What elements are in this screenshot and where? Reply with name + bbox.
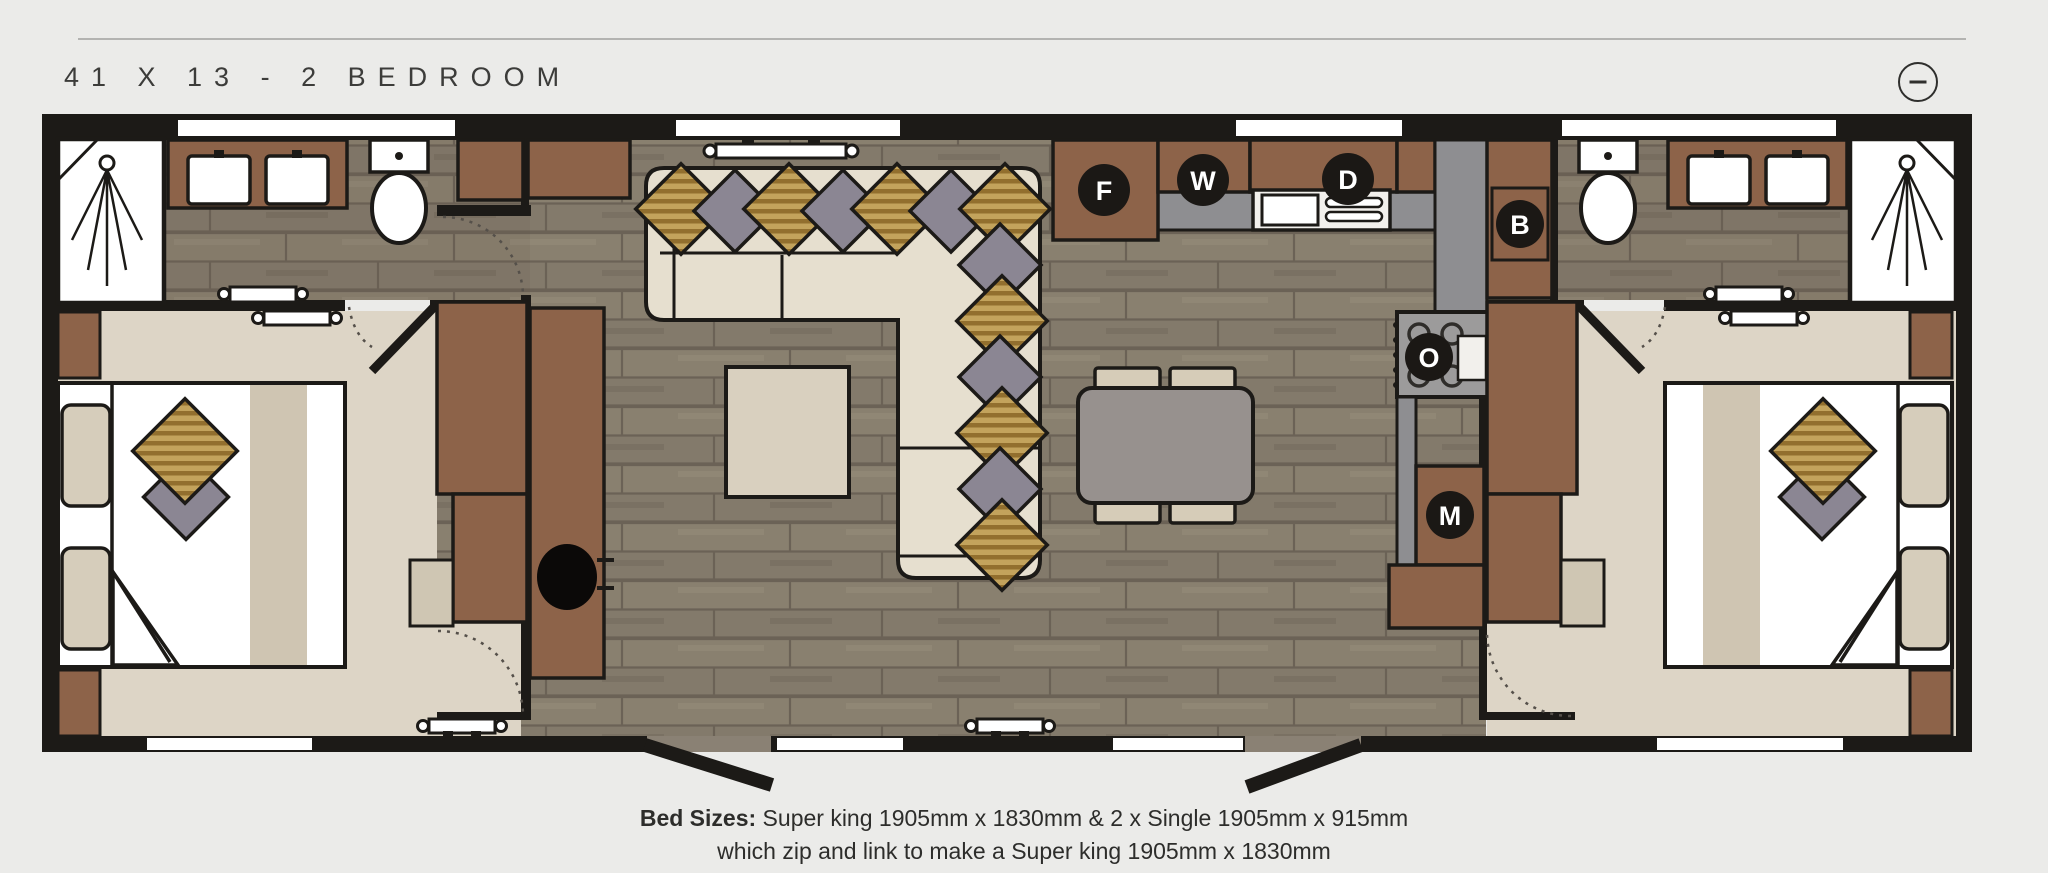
- badge-letter: O: [1418, 343, 1439, 373]
- tap-icon: [1714, 150, 1724, 158]
- window-top-lounge: [676, 120, 900, 136]
- media-fire-unit: [530, 308, 614, 678]
- badge-letter: B: [1510, 210, 1530, 240]
- caption-line-1: Bed Sizes: Super king 1905mm x 1830mm & …: [0, 802, 2048, 835]
- appliance-badge-boiler: B: [1496, 200, 1544, 248]
- shower-head-icon: [100, 156, 114, 170]
- appliance-badge-oven: O: [1405, 333, 1453, 381]
- counter-grey-strip: [1397, 397, 1416, 565]
- appliance-badge-washer: W: [1177, 154, 1229, 206]
- drainer-icon: [1326, 212, 1382, 221]
- nightstand: [62, 405, 110, 506]
- coffee-table: [726, 367, 849, 497]
- sink-basin: [1262, 195, 1318, 225]
- corner-unit: [1910, 670, 1952, 736]
- tv-cabinet: [458, 140, 523, 200]
- tap-icon: [292, 150, 302, 158]
- radiator: [1720, 311, 1809, 325]
- radiator: [253, 311, 342, 325]
- badge-letter: F: [1096, 176, 1113, 206]
- nightstand: [62, 548, 110, 649]
- radiator: [219, 287, 308, 302]
- kitchen-sink: [1253, 190, 1390, 230]
- window-top-ensuite-right: [1562, 120, 1836, 136]
- window-bottom-bedroom-right: [1657, 738, 1843, 750]
- nightstand: [1900, 548, 1948, 649]
- window-bottom-dining: [1113, 738, 1243, 750]
- window-top-ensuite-left: [178, 120, 455, 136]
- radiator: [1705, 287, 1794, 302]
- appliance-badge-fridge: F: [1078, 164, 1130, 216]
- nightstand: [1900, 405, 1948, 506]
- tv-cabinet: [528, 140, 630, 198]
- appliance-badge-microwave: M: [1426, 491, 1474, 539]
- toilet-left: [370, 140, 428, 243]
- tap-icon: [1792, 150, 1802, 158]
- wardrobe-left-b: [453, 494, 527, 622]
- corner-unit: [58, 312, 100, 378]
- stool: [1561, 560, 1604, 626]
- radiator: [418, 719, 507, 737]
- corner-unit: [58, 670, 100, 736]
- badge-letter: M: [1439, 501, 1462, 531]
- radiator: [966, 719, 1055, 737]
- appliance-badge-dishwasher: D: [1322, 153, 1374, 205]
- sink-right-2: [1766, 156, 1828, 204]
- counter-grey-column: [1435, 140, 1487, 312]
- oven-door: [1458, 336, 1486, 380]
- cabinet: [1389, 565, 1484, 628]
- stove-fire-icon: [537, 544, 597, 610]
- window-bottom-bedroom-left: [147, 738, 312, 750]
- vanity-right: [1668, 140, 1847, 208]
- caption-line-2: which zip and link to make a Super king …: [0, 835, 2048, 868]
- sink-left-2: [266, 156, 328, 204]
- page: 41 X 13 - 2 BEDROOM: [0, 0, 2048, 873]
- floorplan-canvas: F W D B O: [0, 0, 2048, 873]
- wardrobe-left-a: [437, 302, 527, 494]
- tap-icon: [214, 150, 224, 158]
- wardrobe-right-a: [1487, 302, 1577, 494]
- bed-runner: [250, 385, 307, 665]
- toilet-right: [1579, 140, 1637, 243]
- wall-vestibule-stub-left: [437, 205, 531, 216]
- badge-letter: D: [1338, 165, 1358, 195]
- corner-unit: [1910, 312, 1952, 378]
- wall-right: [1956, 114, 1972, 752]
- wall-left: [42, 114, 58, 752]
- shower-left: [58, 139, 164, 303]
- cabinet: [1397, 140, 1435, 192]
- window-bottom-lounge: [777, 738, 903, 750]
- caption-line-1-text: Super king 1905mm x 1830mm & 2 x Single …: [756, 805, 1408, 831]
- dining-table: [1078, 388, 1253, 503]
- vanity-left: [168, 140, 347, 208]
- sink-left-1: [188, 156, 250, 204]
- stool: [410, 560, 453, 626]
- wardrobe-right-b: [1487, 494, 1561, 622]
- window-top-kitchen: [1236, 120, 1402, 136]
- bed-sizes-caption: Bed Sizes: Super king 1905mm x 1830mm & …: [0, 802, 2048, 868]
- sink-right-1: [1688, 156, 1750, 204]
- caption-label: Bed Sizes:: [640, 805, 756, 831]
- badge-letter: W: [1190, 166, 1216, 196]
- shower-right: [1850, 139, 1956, 303]
- dining-area: [1078, 368, 1253, 523]
- bed-runner: [1703, 385, 1760, 665]
- shower-head-icon: [1900, 156, 1914, 170]
